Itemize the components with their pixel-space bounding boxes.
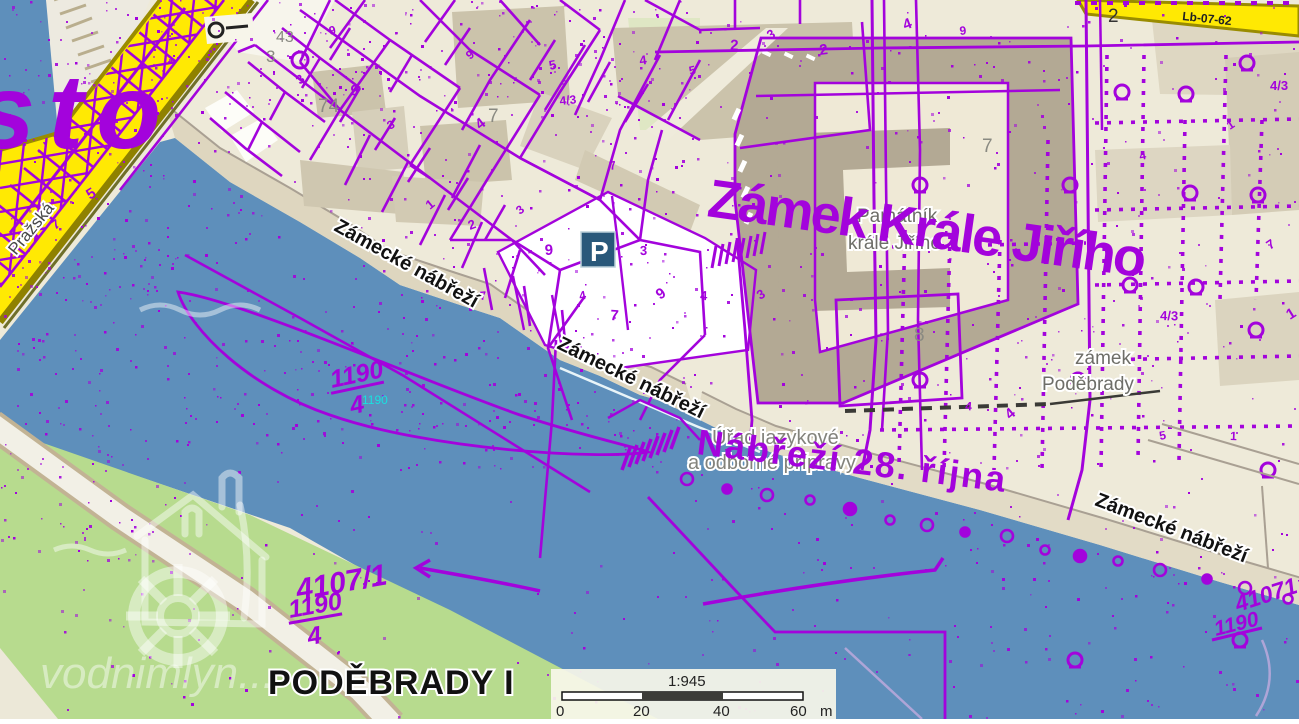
svg-text:sto: sto	[0, 53, 174, 171]
svg-text:7: 7	[488, 106, 499, 127]
svg-text:PODĚBRADY I: PODĚBRADY I	[268, 664, 515, 702]
svg-text:P: P	[590, 236, 609, 267]
svg-text:zámek: zámek	[1075, 348, 1131, 369]
svg-text:8: 8	[914, 325, 925, 346]
svg-text:60: 60	[790, 703, 807, 719]
svg-text:0: 0	[556, 703, 564, 719]
svg-text:4/3: 4/3	[1160, 308, 1178, 323]
svg-text:1: 1	[1230, 429, 1237, 443]
svg-text:2: 2	[1108, 6, 1119, 27]
svg-text:1:945: 1:945	[668, 673, 706, 690]
svg-text:1190: 1190	[362, 393, 388, 407]
svg-text:vodnimlyn...: vodnimlyn...	[40, 649, 275, 698]
svg-text:Poděbrady: Poděbrady	[1042, 374, 1134, 395]
svg-text:9: 9	[544, 242, 553, 259]
svg-text:4/3: 4/3	[1270, 78, 1288, 93]
svg-text:4: 4	[965, 399, 973, 413]
svg-text:4/3: 4/3	[559, 92, 577, 108]
svg-text:4: 4	[700, 288, 708, 303]
svg-text:3: 3	[640, 243, 647, 258]
svg-text:m: m	[820, 703, 833, 719]
svg-text:2: 2	[730, 37, 739, 54]
svg-text:20: 20	[633, 703, 650, 719]
svg-text:9: 9	[350, 82, 360, 100]
svg-text:7: 7	[610, 307, 620, 325]
svg-text:40: 40	[713, 703, 730, 719]
svg-text:7: 7	[982, 136, 993, 157]
svg-text:74: 74	[318, 96, 340, 117]
svg-text:43: 43	[276, 29, 294, 46]
svg-text:3: 3	[266, 47, 275, 66]
